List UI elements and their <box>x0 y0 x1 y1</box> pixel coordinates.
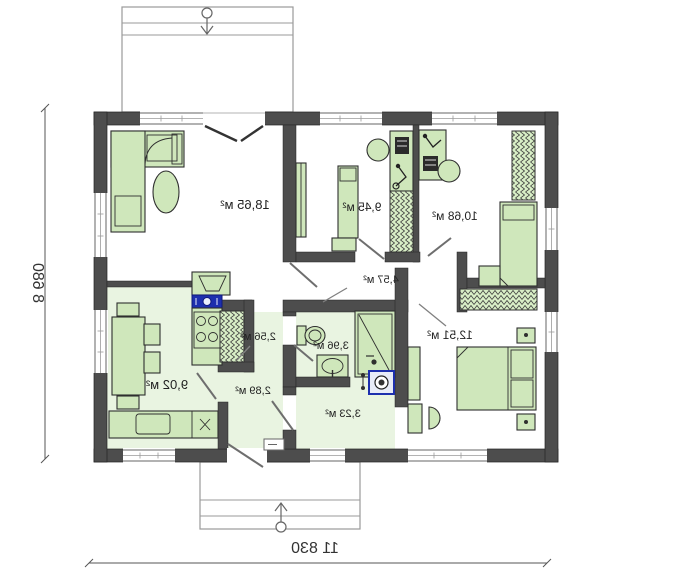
kitchen-stove <box>192 308 222 365</box>
room-area-label-pantry: 2,56 м² <box>240 331 276 343</box>
nightstand-top <box>517 328 535 343</box>
desk-1 <box>390 131 413 191</box>
nightstand-bottom <box>517 414 535 430</box>
bed-double <box>457 347 536 410</box>
terrace <box>122 7 293 112</box>
window-right-bedroom2 <box>544 208 559 250</box>
tall-cabinet <box>408 347 420 400</box>
window-left-kitchen <box>93 310 108 373</box>
entry-arrow-bottom-icon <box>275 503 287 532</box>
main-door-leaf-right <box>241 126 263 141</box>
room-area-label-bedroom3: 12,51 м² <box>427 328 473 342</box>
dressing-table <box>408 404 440 433</box>
room-area-label-kitchen: 9,02 м² <box>145 377 188 392</box>
coffee-table <box>153 171 179 213</box>
window-right-bedroom3 <box>544 312 559 352</box>
room-area-label-bedroom1: 9,45 м² <box>343 200 382 214</box>
kitchen-counter <box>109 411 218 438</box>
washbasin <box>317 355 348 377</box>
shower <box>355 311 395 377</box>
room-area-label-hall: 4,57 м² <box>363 274 399 286</box>
back-door-panel <box>264 439 284 450</box>
window-bottom-laundry <box>310 448 345 463</box>
living-room-furniture <box>111 131 230 295</box>
desk-chair-1 <box>367 139 389 161</box>
desk-chair-2 <box>438 160 460 182</box>
tv-cabinet <box>192 272 230 295</box>
dimension-bottom: 11 830 <box>85 540 551 567</box>
window-left-living <box>93 193 108 257</box>
room-area-label-bedroom2: 10,68 м² <box>432 209 478 223</box>
washing-machine <box>369 371 394 394</box>
window-bottom-kitchen <box>123 448 175 463</box>
window-top-living <box>140 111 203 126</box>
dimension-left: 8 680 <box>29 104 49 463</box>
window-bottom-bedroom3 <box>408 448 487 463</box>
main-entrance-opening <box>203 111 265 126</box>
wardrobe-2 <box>512 131 535 200</box>
stool <box>429 407 440 429</box>
entry-arrow-top-icon <box>201 8 213 34</box>
room-area-label-bathroom: 3,96 м² <box>313 340 349 352</box>
window-top-bedroom1 <box>320 111 382 126</box>
dimension-width-label: 11 830 <box>291 540 339 557</box>
room-area-label-corridor: 2,89 м² <box>235 385 271 397</box>
room-area-label-living: 18,65 м² <box>220 197 270 212</box>
wardrobe-3 <box>460 289 537 310</box>
floor-plan-page: 18,65 м² 9,45 м² 10,68 м² 4,57 м² 12,51 … <box>0 0 700 575</box>
porch <box>200 462 360 532</box>
bed-single-2 <box>479 202 537 286</box>
main-door-leaf-left <box>205 126 237 141</box>
bedroom3-leader <box>419 304 446 326</box>
kitchen-sink <box>192 295 222 308</box>
wardrobe-1 <box>390 191 413 252</box>
bedroom2-door-leaf <box>428 238 451 256</box>
dimension-depth-label: 8 680 <box>29 263 46 303</box>
bedroom2-furniture <box>419 130 537 286</box>
floor-plan-canvas: 18,65 м² 9,45 м² 10,68 м² 4,57 м² 12,51 … <box>0 0 700 575</box>
room-area-label-laundry: 3,23 м² <box>325 408 361 420</box>
bedroom1-furniture <box>296 131 413 252</box>
window-top-bedroom2 <box>432 111 497 126</box>
bedroom1-door-leaf <box>359 239 384 259</box>
living-hall-door-leaf <box>290 263 317 287</box>
